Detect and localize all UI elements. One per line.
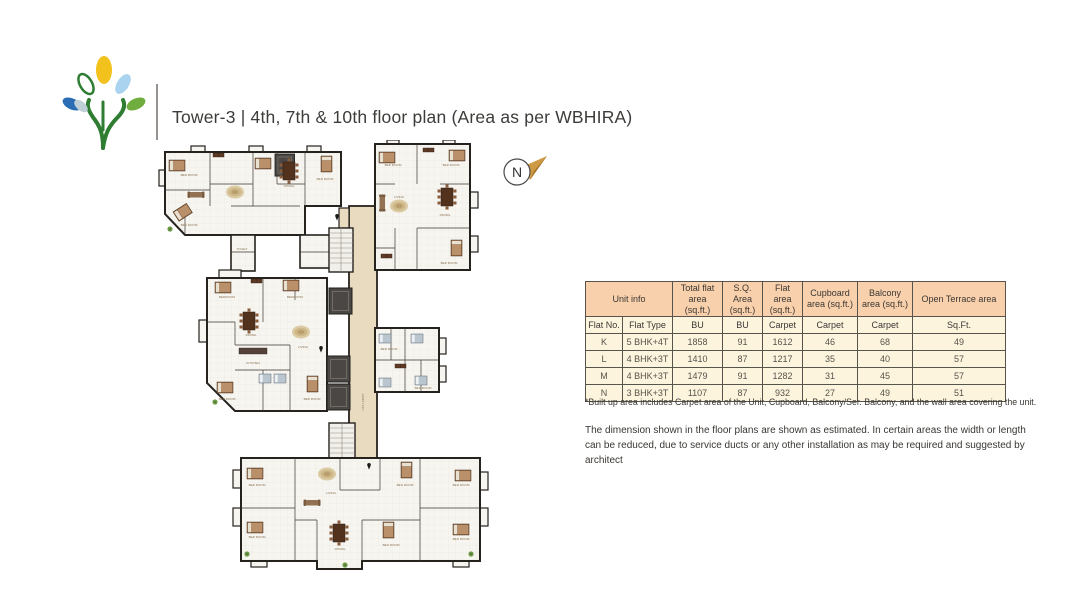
table-cell: 4 BHK+3T xyxy=(623,368,673,385)
table-header-cell: Cupboard area (sq.ft.) xyxy=(803,282,858,317)
leaf-green xyxy=(125,95,148,113)
table-sub-header-row: Flat No. Flat Type BU BU Carpet Carpet C… xyxy=(586,317,1006,334)
room-label: KITCHEN xyxy=(246,361,260,365)
table-header-cell: S.Q. Area (sq.ft.) xyxy=(723,282,763,317)
room-label: LIVING xyxy=(394,195,405,199)
room-label: BED ROOM xyxy=(249,535,266,539)
room-label: DINING xyxy=(335,547,346,551)
table-header-cell: BU xyxy=(723,317,763,334)
room-label: BED ROOM xyxy=(249,483,266,487)
table-row: M 4 BHK+3T 1479 91 1282 31 45 57 xyxy=(586,368,1006,385)
table-cell: 4 BHK+3T xyxy=(623,351,673,368)
room-label: BEDROOM xyxy=(287,295,303,299)
table-header-cell: Open Terrace area xyxy=(913,282,1006,317)
room-label: BED ROOM xyxy=(181,223,198,227)
table-header-cell: Flat No. xyxy=(586,317,623,334)
table-cell: 49 xyxy=(913,334,1006,351)
room-label: DINING xyxy=(440,213,451,217)
room-label: BED ROOM xyxy=(381,347,398,351)
room-label: BED ROOM xyxy=(443,163,460,167)
table-header-cell: Unit info xyxy=(586,282,673,317)
room-label: LIVING xyxy=(326,491,337,495)
disclaimer-text: The dimension shown in the floor plans a… xyxy=(585,423,1031,468)
leaf-yellow xyxy=(96,56,112,84)
room-label: BED ROOM xyxy=(397,483,414,487)
table-cell: 57 xyxy=(913,351,1006,368)
table-cell: 91 xyxy=(723,368,763,385)
room-label: LIFT LOBBY xyxy=(361,393,365,410)
table-footnote: *Built up area includes Carpet area of t… xyxy=(585,397,1036,407)
table-cell: 1282 xyxy=(763,368,803,385)
table-cell: L xyxy=(586,351,623,368)
tree-logo xyxy=(58,50,150,150)
room-label: BED ROOM xyxy=(383,543,400,547)
room-label: BED ROOM xyxy=(181,173,198,177)
table-header-cell: BU xyxy=(673,317,723,334)
north-compass-icon: N xyxy=(495,150,551,198)
room-label: BED ROOM xyxy=(453,483,470,487)
room-label: DINING xyxy=(284,184,295,188)
top-left-wing xyxy=(159,146,341,271)
top-right-wing xyxy=(375,140,478,270)
middle-left-unit xyxy=(199,270,327,411)
table-header-cell: Flat area (sq.ft.) xyxy=(763,282,803,317)
floor-plan: BED ROOM DINING BED ROOM BED ROOM TOILET… xyxy=(155,140,500,570)
room-label: DINING xyxy=(246,333,257,337)
room-label: BEDROOM xyxy=(219,295,235,299)
table-cell: 91 xyxy=(723,334,763,351)
room-label: BED ROOM xyxy=(219,397,236,401)
table-cell: 68 xyxy=(858,334,913,351)
table-cell: 1612 xyxy=(763,334,803,351)
table-header-cell: Carpet xyxy=(803,317,858,334)
room-label: BED ROOM xyxy=(453,537,470,541)
table-cell: 1479 xyxy=(673,368,723,385)
table-header-cell: Carpet xyxy=(858,317,913,334)
tree-trunk xyxy=(88,100,124,148)
leaf-lightblue xyxy=(112,71,134,96)
table-cell: 40 xyxy=(858,351,913,368)
table-cell: M xyxy=(586,368,623,385)
table-header-cell: Carpet xyxy=(763,317,803,334)
area-table: Unit info Total flat area (sq.ft.) S.Q. … xyxy=(585,281,1006,402)
table-cell: 57 xyxy=(913,368,1006,385)
room-label: BED ROOM xyxy=(317,177,334,181)
table-cell: 1410 xyxy=(673,351,723,368)
table-cell: 35 xyxy=(803,351,858,368)
room-label: BED ROOM xyxy=(441,261,458,265)
staircase-upper xyxy=(329,228,353,272)
room-label: BED ROOM xyxy=(304,397,321,401)
room-label: BED ROOM xyxy=(385,163,402,167)
staircase-lower xyxy=(329,423,355,459)
table-header-cell: Total flat area (sq.ft.) xyxy=(673,282,723,317)
table-row: K 5 BHK+4T 1858 91 1612 46 68 49 xyxy=(586,334,1006,351)
table-cell: 1217 xyxy=(763,351,803,368)
table-row: L 4 BHK+3T 1410 87 1217 35 40 57 xyxy=(586,351,1006,368)
bottom-block xyxy=(233,458,488,569)
room-label: LIVING xyxy=(298,345,309,349)
table-cell: 45 xyxy=(858,368,913,385)
table-header-cell: Balcony area (sq.ft.) xyxy=(858,282,913,317)
middle-right-unit xyxy=(375,328,446,392)
leaf-outline xyxy=(75,71,96,96)
table-cell: 5 BHK+4T xyxy=(623,334,673,351)
room-label: BED ROOM xyxy=(415,386,432,390)
table-group-header-row: Unit info Total flat area (sq.ft.) S.Q. … xyxy=(586,282,1006,317)
table-cell: 1858 xyxy=(673,334,723,351)
table-header-cell: Sq.Ft. xyxy=(913,317,1006,334)
table-cell: 31 xyxy=(803,368,858,385)
page-title: Tower-3 | 4th, 7th & 10th floor plan (Ar… xyxy=(172,107,632,128)
table-cell: 46 xyxy=(803,334,858,351)
title-separator xyxy=(156,84,158,140)
compass-label: N xyxy=(512,164,522,180)
table-header-cell: Flat Type xyxy=(623,317,673,334)
table-cell: K xyxy=(586,334,623,351)
table-cell: 87 xyxy=(723,351,763,368)
room-label: TOILET xyxy=(237,247,248,251)
